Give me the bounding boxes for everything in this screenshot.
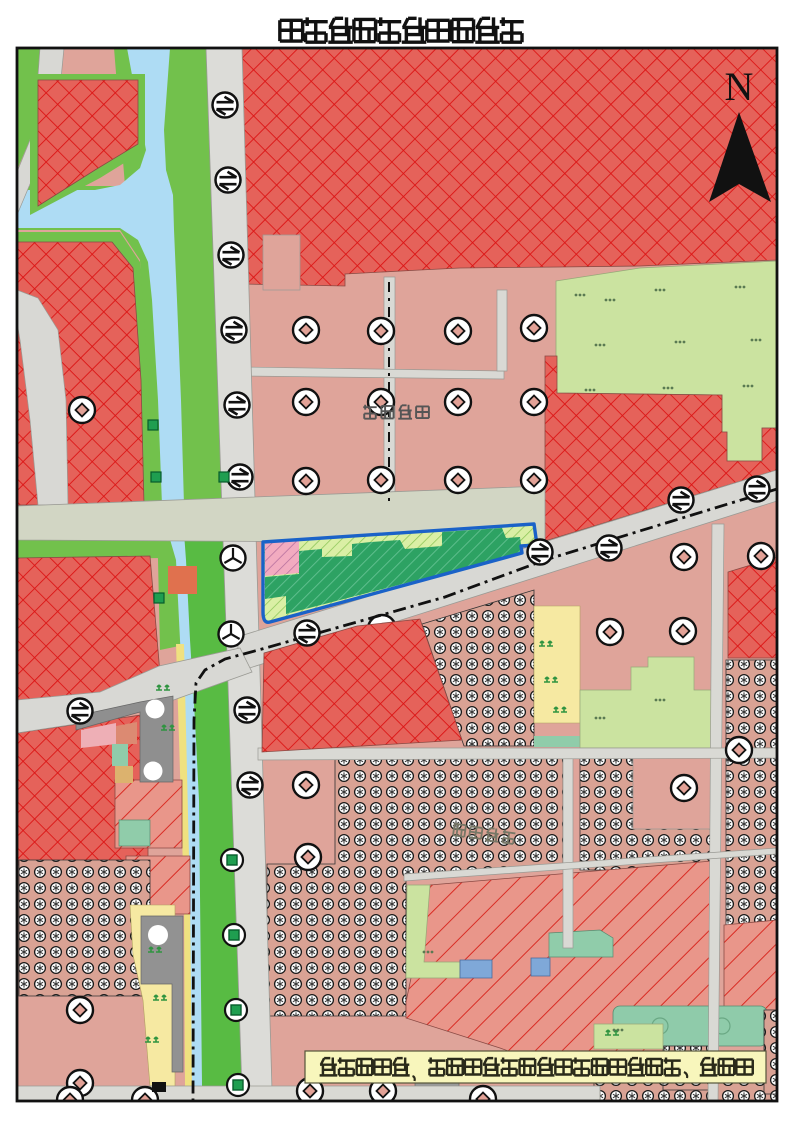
svg-text:N: N [725,64,754,109]
